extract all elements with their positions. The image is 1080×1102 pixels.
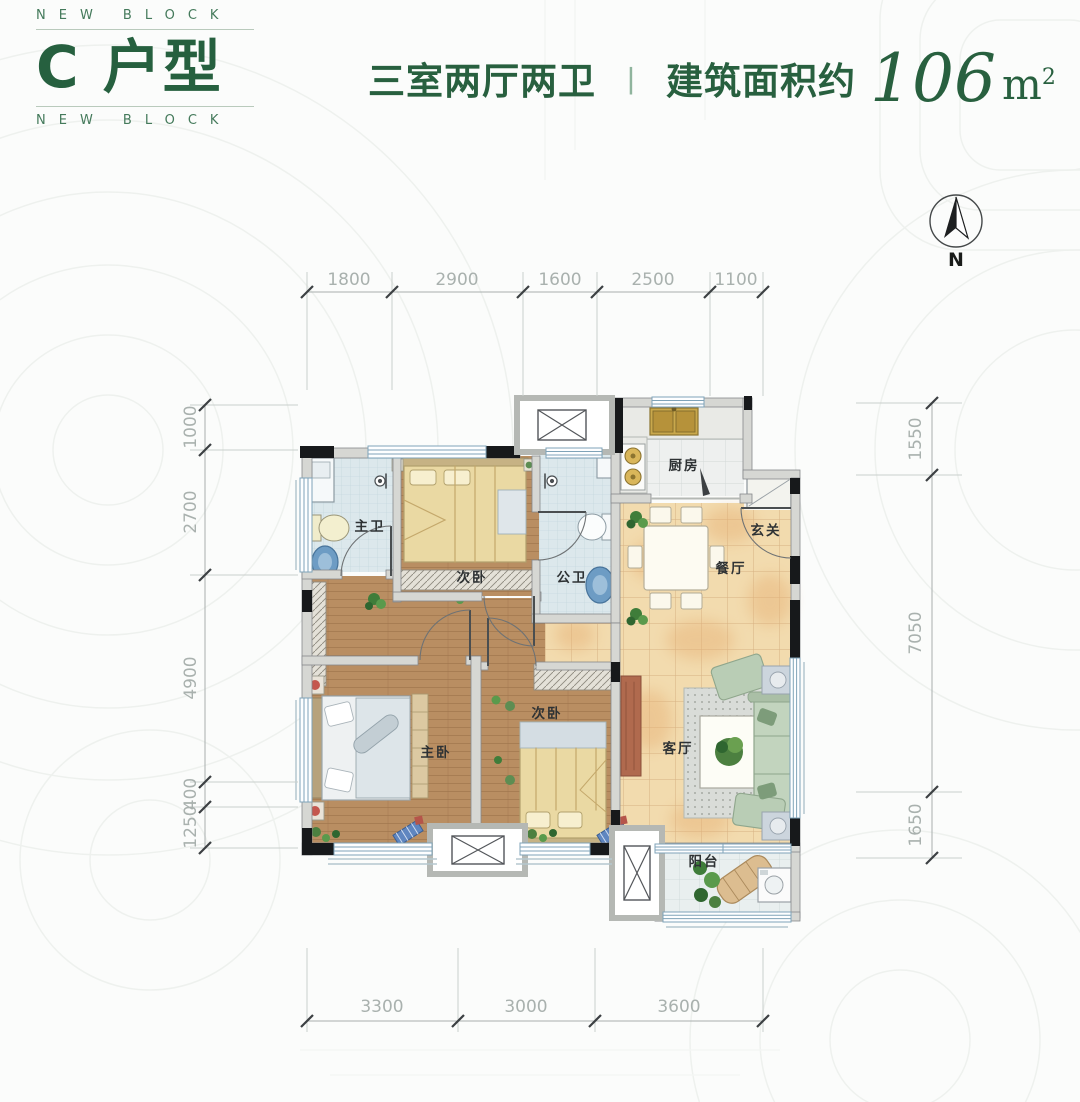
tv-cabinet-icon [621,676,641,776]
stove-icon [621,444,645,490]
label-master-bedroom: 主卧 [421,744,452,761]
dim-top-3: 1600 [538,270,581,290]
window-left-masterbath [296,478,312,572]
bed-icon-master [306,676,428,820]
shaft-top [517,398,612,452]
coffee-table-icon [700,716,758,788]
dimension-left: 1000 2700 4900 400 1250 [181,399,298,854]
bed-icon-top [392,458,535,562]
dim-right-3: 1650 [906,803,926,846]
layout-text: 三室两厅两卫 [368,63,596,110]
dim-top-2: 2900 [435,270,478,290]
separator-bar: 丨 [596,68,666,110]
dim-top-5: 1100 [714,270,757,290]
dim-top-4: 2500 [631,270,674,290]
washer-icon [758,868,791,902]
window-top-publicbath [546,448,602,458]
area-value: 106 [856,49,1002,110]
label-kitchen: 厨房 [669,457,700,474]
window-bottom-masterbedroom [328,843,437,864]
kitchen-sink-icon [650,407,698,435]
window-top-bedroom [368,446,486,458]
area-unit-sup: 2 [1042,65,1056,90]
unit-summary: 三室两厅两卫 丨 建筑面积约 106 m2 [368,36,1056,110]
dim-top-1: 1800 [327,270,370,290]
compass-north-label: N [948,249,964,271]
area-unit: m2 [1002,64,1056,110]
label-master-bath: 主卫 [355,518,386,535]
dim-right-1: 1550 [906,417,926,460]
dim-bottom-2: 3000 [504,997,547,1017]
shoe-cabinet-icon [747,478,791,508]
dim-bottom-3: 3600 [657,997,700,1017]
window-balcony-slider [655,844,791,853]
label-balcony: 阳台 [689,853,720,870]
area-label: 建筑面积约 [666,63,856,110]
toilet-icon-master [311,515,349,541]
label-bedroom-top: 次卧 [457,569,488,586]
shaft-balcony-left [612,828,662,918]
dimension-bottom: 3300 3000 3600 [301,948,769,1032]
label-dining: 餐厅 [715,560,747,577]
label-bedroom-bottom: 次卧 [532,705,563,722]
dim-left-1: 1000 [181,405,201,448]
dimension-top: 1800 2900 1600 2500 1100 [301,270,769,396]
dim-bottom-1: 3300 [360,997,403,1017]
dim-left-3: 4900 [181,656,201,699]
brand-divider-bottom [36,106,254,107]
window-right-living [790,658,804,818]
floorplan-drawing: 主卫 次卧 公卫 厨房 玄关 餐厅 主卧 次卧 客厅 阳台 1800 2900 … [0,0,1080,1102]
floorplan-page: 主卫 次卧 公卫 厨房 玄关 餐厅 主卧 次卧 客厅 阳台 1800 2900 … [0,0,1080,1102]
label-living: 客厅 [662,740,694,757]
sink-icon-public [586,567,614,603]
bed-icon-bottom [505,701,608,844]
brand-divider-top [36,29,254,30]
cabinet-icon-public-bath [597,458,613,478]
brand-top-text: NEW BLOCK [36,8,258,23]
dim-left-5: 1250 [181,805,201,848]
dimension-right: 1550 7050 1650 [856,397,962,864]
shaft-bottom-middle [430,826,525,874]
page-title: C 户型 [36,34,258,100]
dim-left-2: 2700 [181,490,201,533]
window-kitchen [652,397,704,407]
dim-left-4: 400 [181,778,201,810]
window-balcony-bottom [663,912,791,927]
brand-bottom-text: NEW BLOCK [36,113,258,128]
window-left-masterbedroom [296,698,312,802]
brand-block: NEW BLOCK C 户型 NEW BLOCK [36,8,258,128]
north-arrow-icon [944,197,968,238]
dim-right-2: 7050 [906,611,926,654]
label-public-bath: 公卫 [557,570,588,586]
label-foyer: 玄关 [751,522,782,539]
